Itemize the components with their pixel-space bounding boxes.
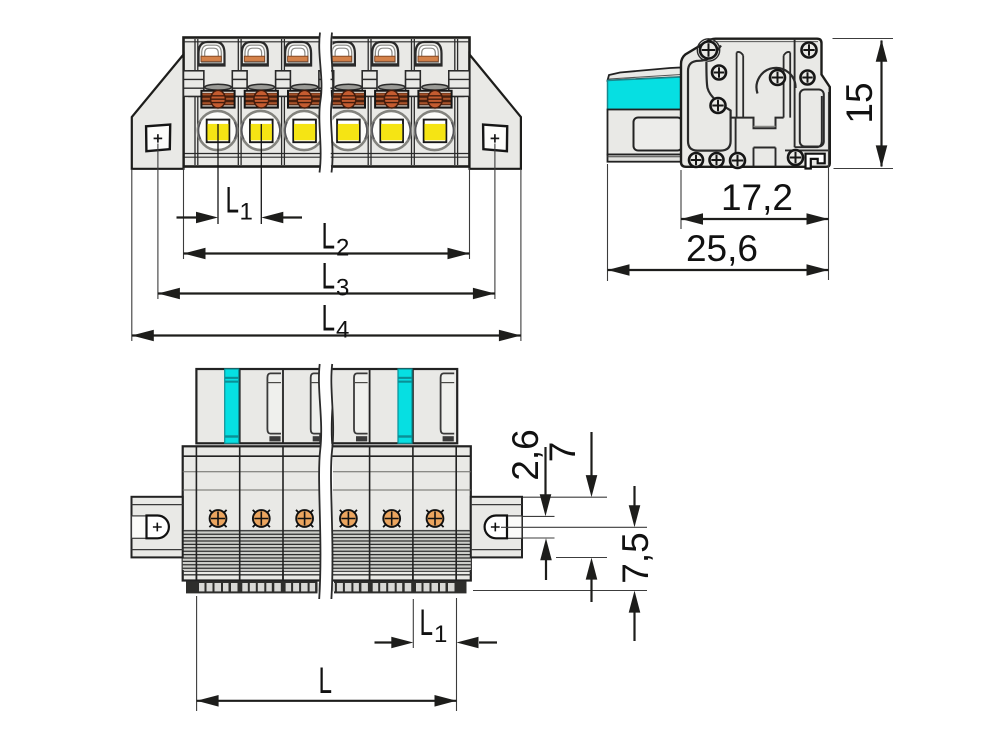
svg-text:15: 15 [839, 82, 880, 123]
svg-text:3: 3 [336, 275, 349, 302]
svg-text:7,5: 7,5 [615, 532, 656, 583]
svg-text:7: 7 [542, 442, 583, 463]
svg-text:4: 4 [336, 317, 349, 344]
svg-text:L: L [420, 602, 434, 643]
svg-text:L: L [319, 660, 333, 701]
svg-text:17,2: 17,2 [721, 177, 793, 218]
svg-text:L: L [322, 298, 336, 339]
svg-text:L: L [226, 180, 240, 221]
svg-text:L: L [322, 256, 336, 297]
svg-text:2: 2 [336, 235, 349, 262]
svg-text:1: 1 [434, 621, 447, 648]
svg-text:L: L [322, 216, 336, 257]
svg-text:25,6: 25,6 [686, 228, 758, 269]
svg-text:1: 1 [240, 199, 253, 226]
svg-text:2,6: 2,6 [505, 429, 546, 480]
